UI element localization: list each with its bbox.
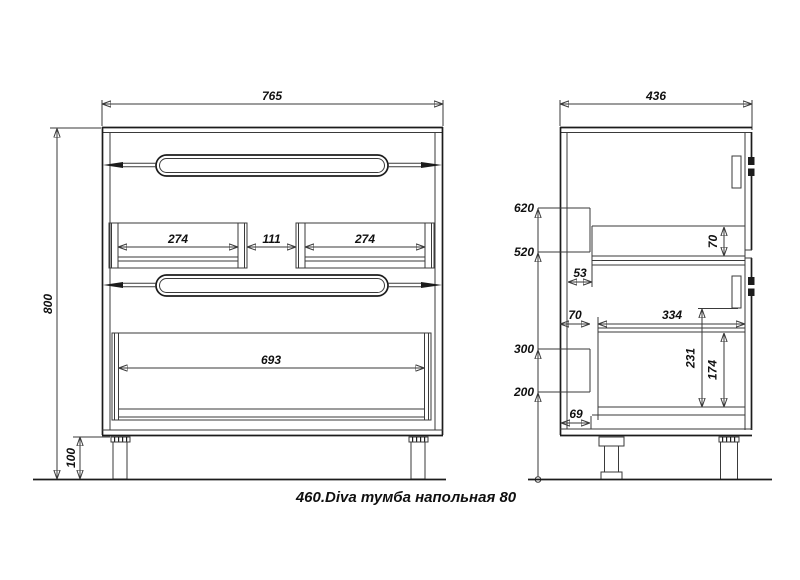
dim-label-70-lower: 70 [568, 308, 582, 322]
drawing-page: 765 800 100 [0, 0, 800, 580]
dim-label-693: 693 [261, 353, 281, 367]
dim-label-111: 111 [262, 232, 281, 246]
leg-mount-hatch [114, 437, 127, 442]
handle-nub [748, 169, 755, 177]
side-view: 436 [513, 89, 772, 482]
front-handle-top [103, 155, 442, 176]
front-legs [111, 437, 428, 479]
dim-label-620: 620 [514, 201, 534, 215]
panel-gap-arrow-right [421, 162, 442, 168]
side-dim-overall-depth: 436 [560, 89, 752, 130]
front-view: 765 800 100 [33, 89, 446, 480]
front-dim-leg-height: 100 [64, 437, 110, 479]
dim-label-765: 765 [262, 89, 282, 103]
front-dim-overall-height: 800 [41, 128, 101, 479]
panel-gap-arrow-left [103, 282, 123, 288]
side-height-chain: 620 520 300 200 [513, 201, 590, 482]
technical-drawing: 765 800 100 [0, 0, 800, 580]
dim-label-274-right: 274 [354, 232, 375, 246]
panel-gap-arrow-left [103, 162, 123, 168]
leg-mount-hatch [722, 437, 735, 442]
front-cabinet-outline [102, 127, 443, 436]
dim-label-70-upper: 70 [706, 235, 720, 249]
side-lower-drawer: 70 334 231 174 69 [560, 308, 745, 429]
front-dim-overall-width: 765 [102, 89, 443, 126]
handle-nub [748, 289, 755, 297]
front-bottom-drawer: 693 [112, 333, 431, 420]
side-legs [599, 437, 739, 480]
handle-recess-bottom [732, 276, 741, 308]
handle-nub [748, 277, 755, 285]
leg-mount-hatch [412, 437, 425, 442]
front-handle-bottom [103, 275, 442, 296]
dim-label-274-left: 274 [167, 232, 188, 246]
dim-label-520: 520 [514, 245, 534, 259]
dim-label-231: 231 [684, 348, 698, 369]
side-cabinet-outline [560, 127, 752, 436]
dim-label-69: 69 [569, 407, 583, 421]
dim-label-53: 53 [573, 266, 587, 280]
dim-label-300: 300 [514, 342, 534, 356]
dim-label-436: 436 [645, 89, 666, 103]
drawing-caption: 460.Diva тумба напольная 80 [295, 489, 517, 506]
handle-nub [748, 157, 755, 165]
handle-recess-top [732, 156, 741, 188]
panel-gap-arrow-right [421, 282, 442, 288]
dim-label-800: 800 [41, 294, 55, 314]
dim-label-174: 174 [706, 360, 720, 380]
front-inner-drawers: 274 274 111 [109, 223, 434, 268]
dim-label-334: 334 [662, 308, 682, 322]
dim-label-200: 200 [513, 385, 534, 399]
side-upper-drawer: 70 53 [568, 226, 745, 287]
dim-label-100: 100 [64, 448, 78, 468]
